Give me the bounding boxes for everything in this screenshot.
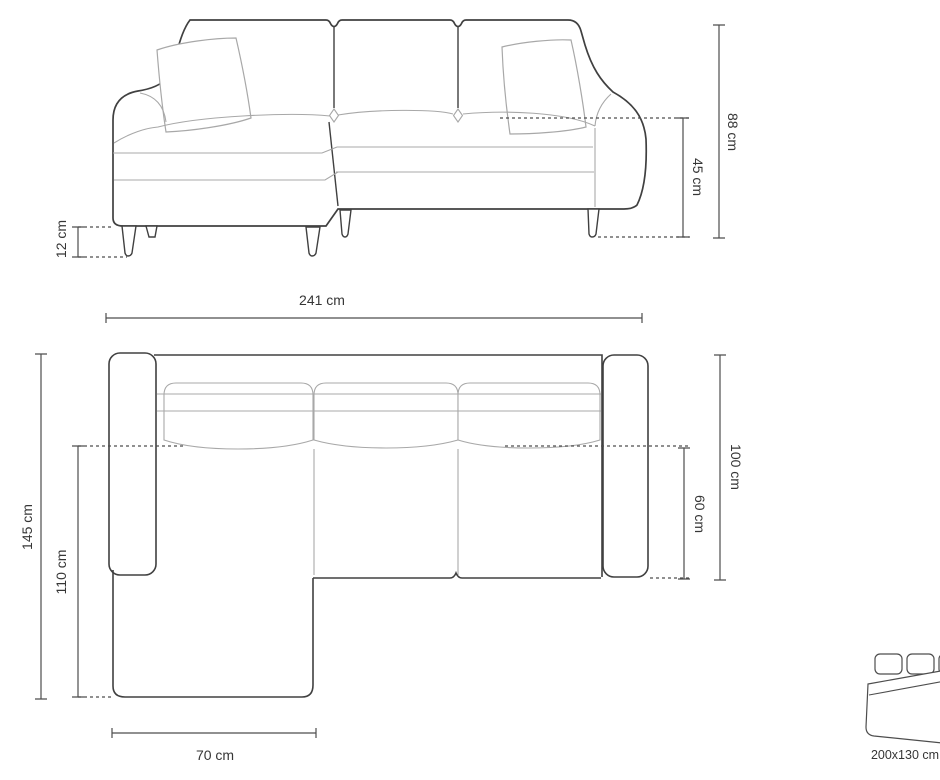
total-depth-label: 145 cm xyxy=(19,504,35,550)
total-height-label: 88 cm xyxy=(725,113,741,151)
front-view-drawing xyxy=(113,20,646,256)
seat-height-label: 45 cm xyxy=(690,158,706,196)
chaise-depth-label: 110 cm xyxy=(53,550,69,595)
sofa-dimension-diagram: 12 cm 88 cm 45 cm 241 cm 145 cm 110 cm 1… xyxy=(0,0,940,780)
sofa-bed-icon xyxy=(866,654,940,744)
diagram-line-art xyxy=(0,0,940,780)
frame-depth-label: 100 cm xyxy=(728,444,744,490)
total-width-label: 241 cm xyxy=(299,292,345,308)
leg-height-label: 12 cm xyxy=(53,220,69,258)
top-view-drawing xyxy=(109,353,648,697)
sleeping-area-label: 200x130 cm xyxy=(871,748,939,762)
seat-depth-label: 60 cm xyxy=(692,495,708,533)
chaise-width-label: 70 cm xyxy=(196,747,234,763)
